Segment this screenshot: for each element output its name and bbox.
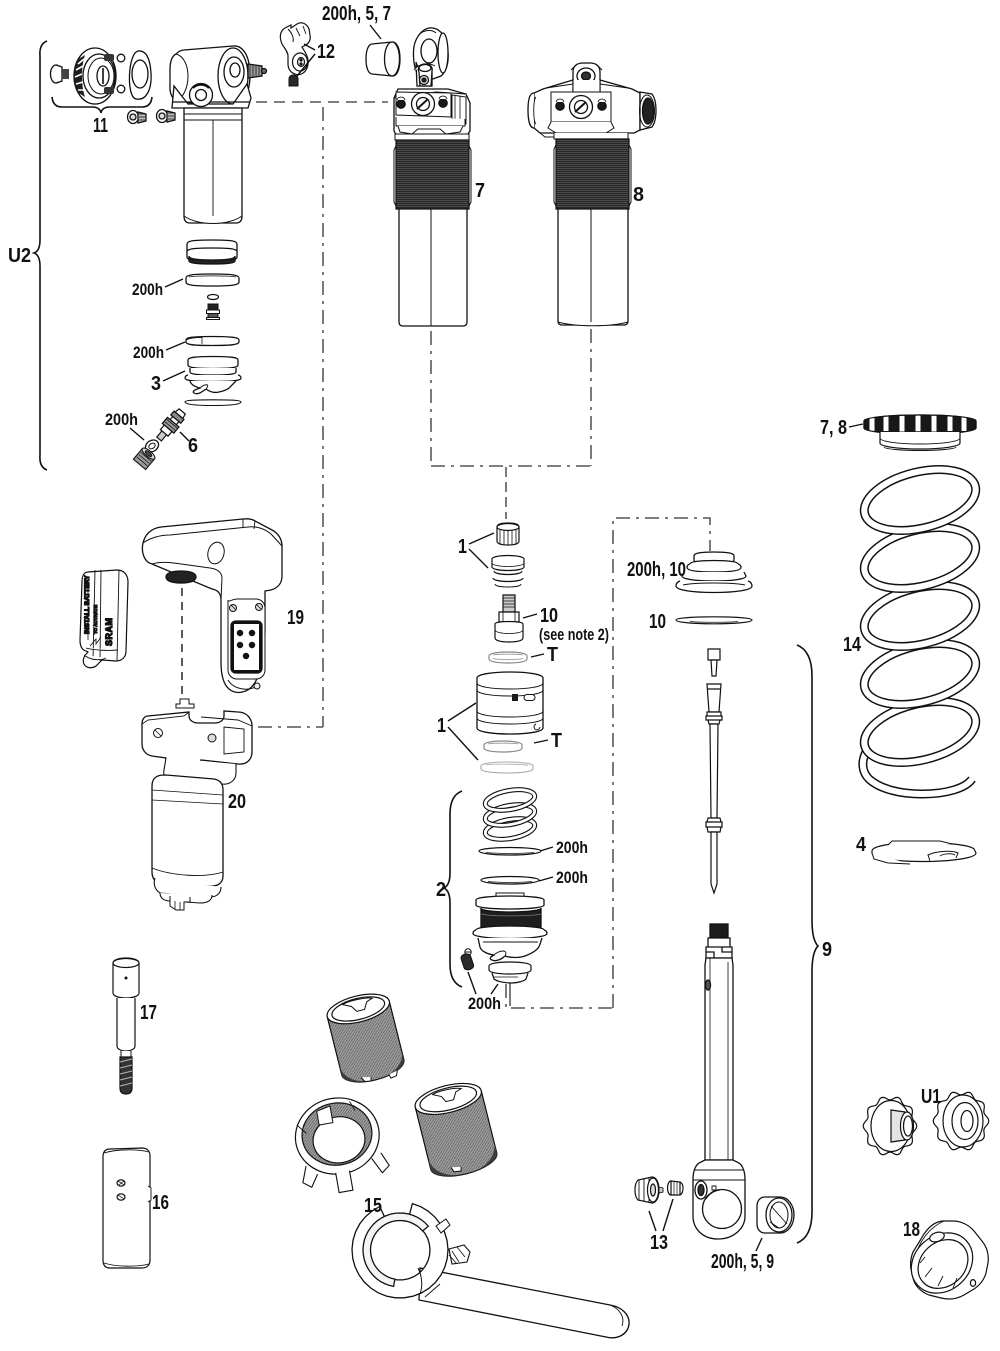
svg-text:200h: 200h <box>133 343 164 362</box>
svg-text:1: 1 <box>458 536 467 558</box>
svg-text:16: 16 <box>152 1192 169 1214</box>
svg-text:2: 2 <box>436 879 446 901</box>
svg-text:U1: U1 <box>921 1086 941 1108</box>
svg-text:200h: 200h <box>556 838 588 857</box>
svg-text:10: 10 <box>649 611 666 633</box>
svg-text:200h: 200h <box>105 410 138 429</box>
svg-text:7, 8: 7, 8 <box>820 417 847 439</box>
svg-text:(see note 2): (see note 2) <box>539 625 609 644</box>
svg-text:7: 7 <box>475 180 485 202</box>
svg-text:19: 19 <box>287 607 304 629</box>
svg-text:11: 11 <box>93 115 108 137</box>
svg-text:U2: U2 <box>8 245 31 267</box>
svg-text:1: 1 <box>437 715 446 737</box>
svg-text:17: 17 <box>140 1002 157 1024</box>
svg-text:4: 4 <box>856 834 867 856</box>
svg-text:200h, 5, 9: 200h, 5, 9 <box>711 1251 774 1273</box>
svg-text:10: 10 <box>540 605 558 627</box>
svg-text:INSTALL BATTERY: INSTALL BATTERY <box>84 575 91 634</box>
svg-text:200h: 200h <box>468 994 501 1013</box>
svg-text:200h: 200h <box>556 868 588 887</box>
svg-text:15: 15 <box>364 1195 382 1217</box>
svg-text:20: 20 <box>228 791 246 813</box>
svg-text:9: 9 <box>822 939 832 961</box>
svg-text:13: 13 <box>650 1232 668 1254</box>
svg-text:200h, 10: 200h, 10 <box>627 559 686 581</box>
svg-text:12: 12 <box>317 41 335 63</box>
svg-text:14: 14 <box>843 634 862 656</box>
svg-text:TO ACTIVATE: TO ACTIVATE <box>93 605 98 634</box>
svg-text:6: 6 <box>188 435 198 457</box>
svg-text:T: T <box>547 644 558 666</box>
svg-text:18: 18 <box>903 1219 920 1241</box>
svg-text:3: 3 <box>151 373 161 395</box>
svg-text:200h, 5, 7: 200h, 5, 7 <box>322 3 391 25</box>
svg-text:200h: 200h <box>132 280 163 299</box>
svg-text:8: 8 <box>633 184 644 206</box>
svg-text:T: T <box>551 730 562 752</box>
svg-text:SRAM: SRAM <box>104 618 114 647</box>
